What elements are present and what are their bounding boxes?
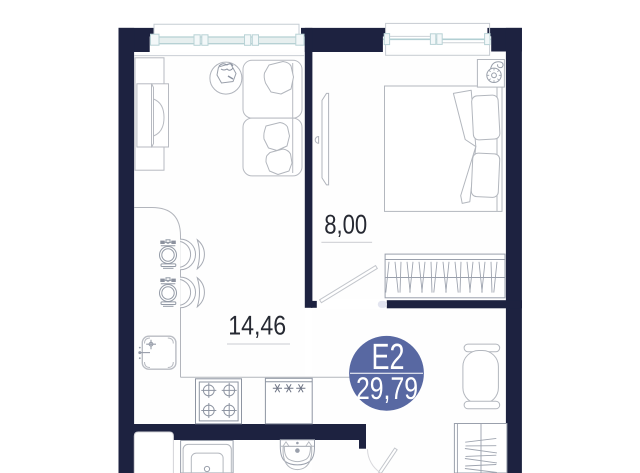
svg-text:29,79: 29,79 [356, 371, 418, 406]
svg-text:14,46: 14,46 [228, 311, 286, 341]
svg-text:8,00: 8,00 [324, 210, 367, 240]
